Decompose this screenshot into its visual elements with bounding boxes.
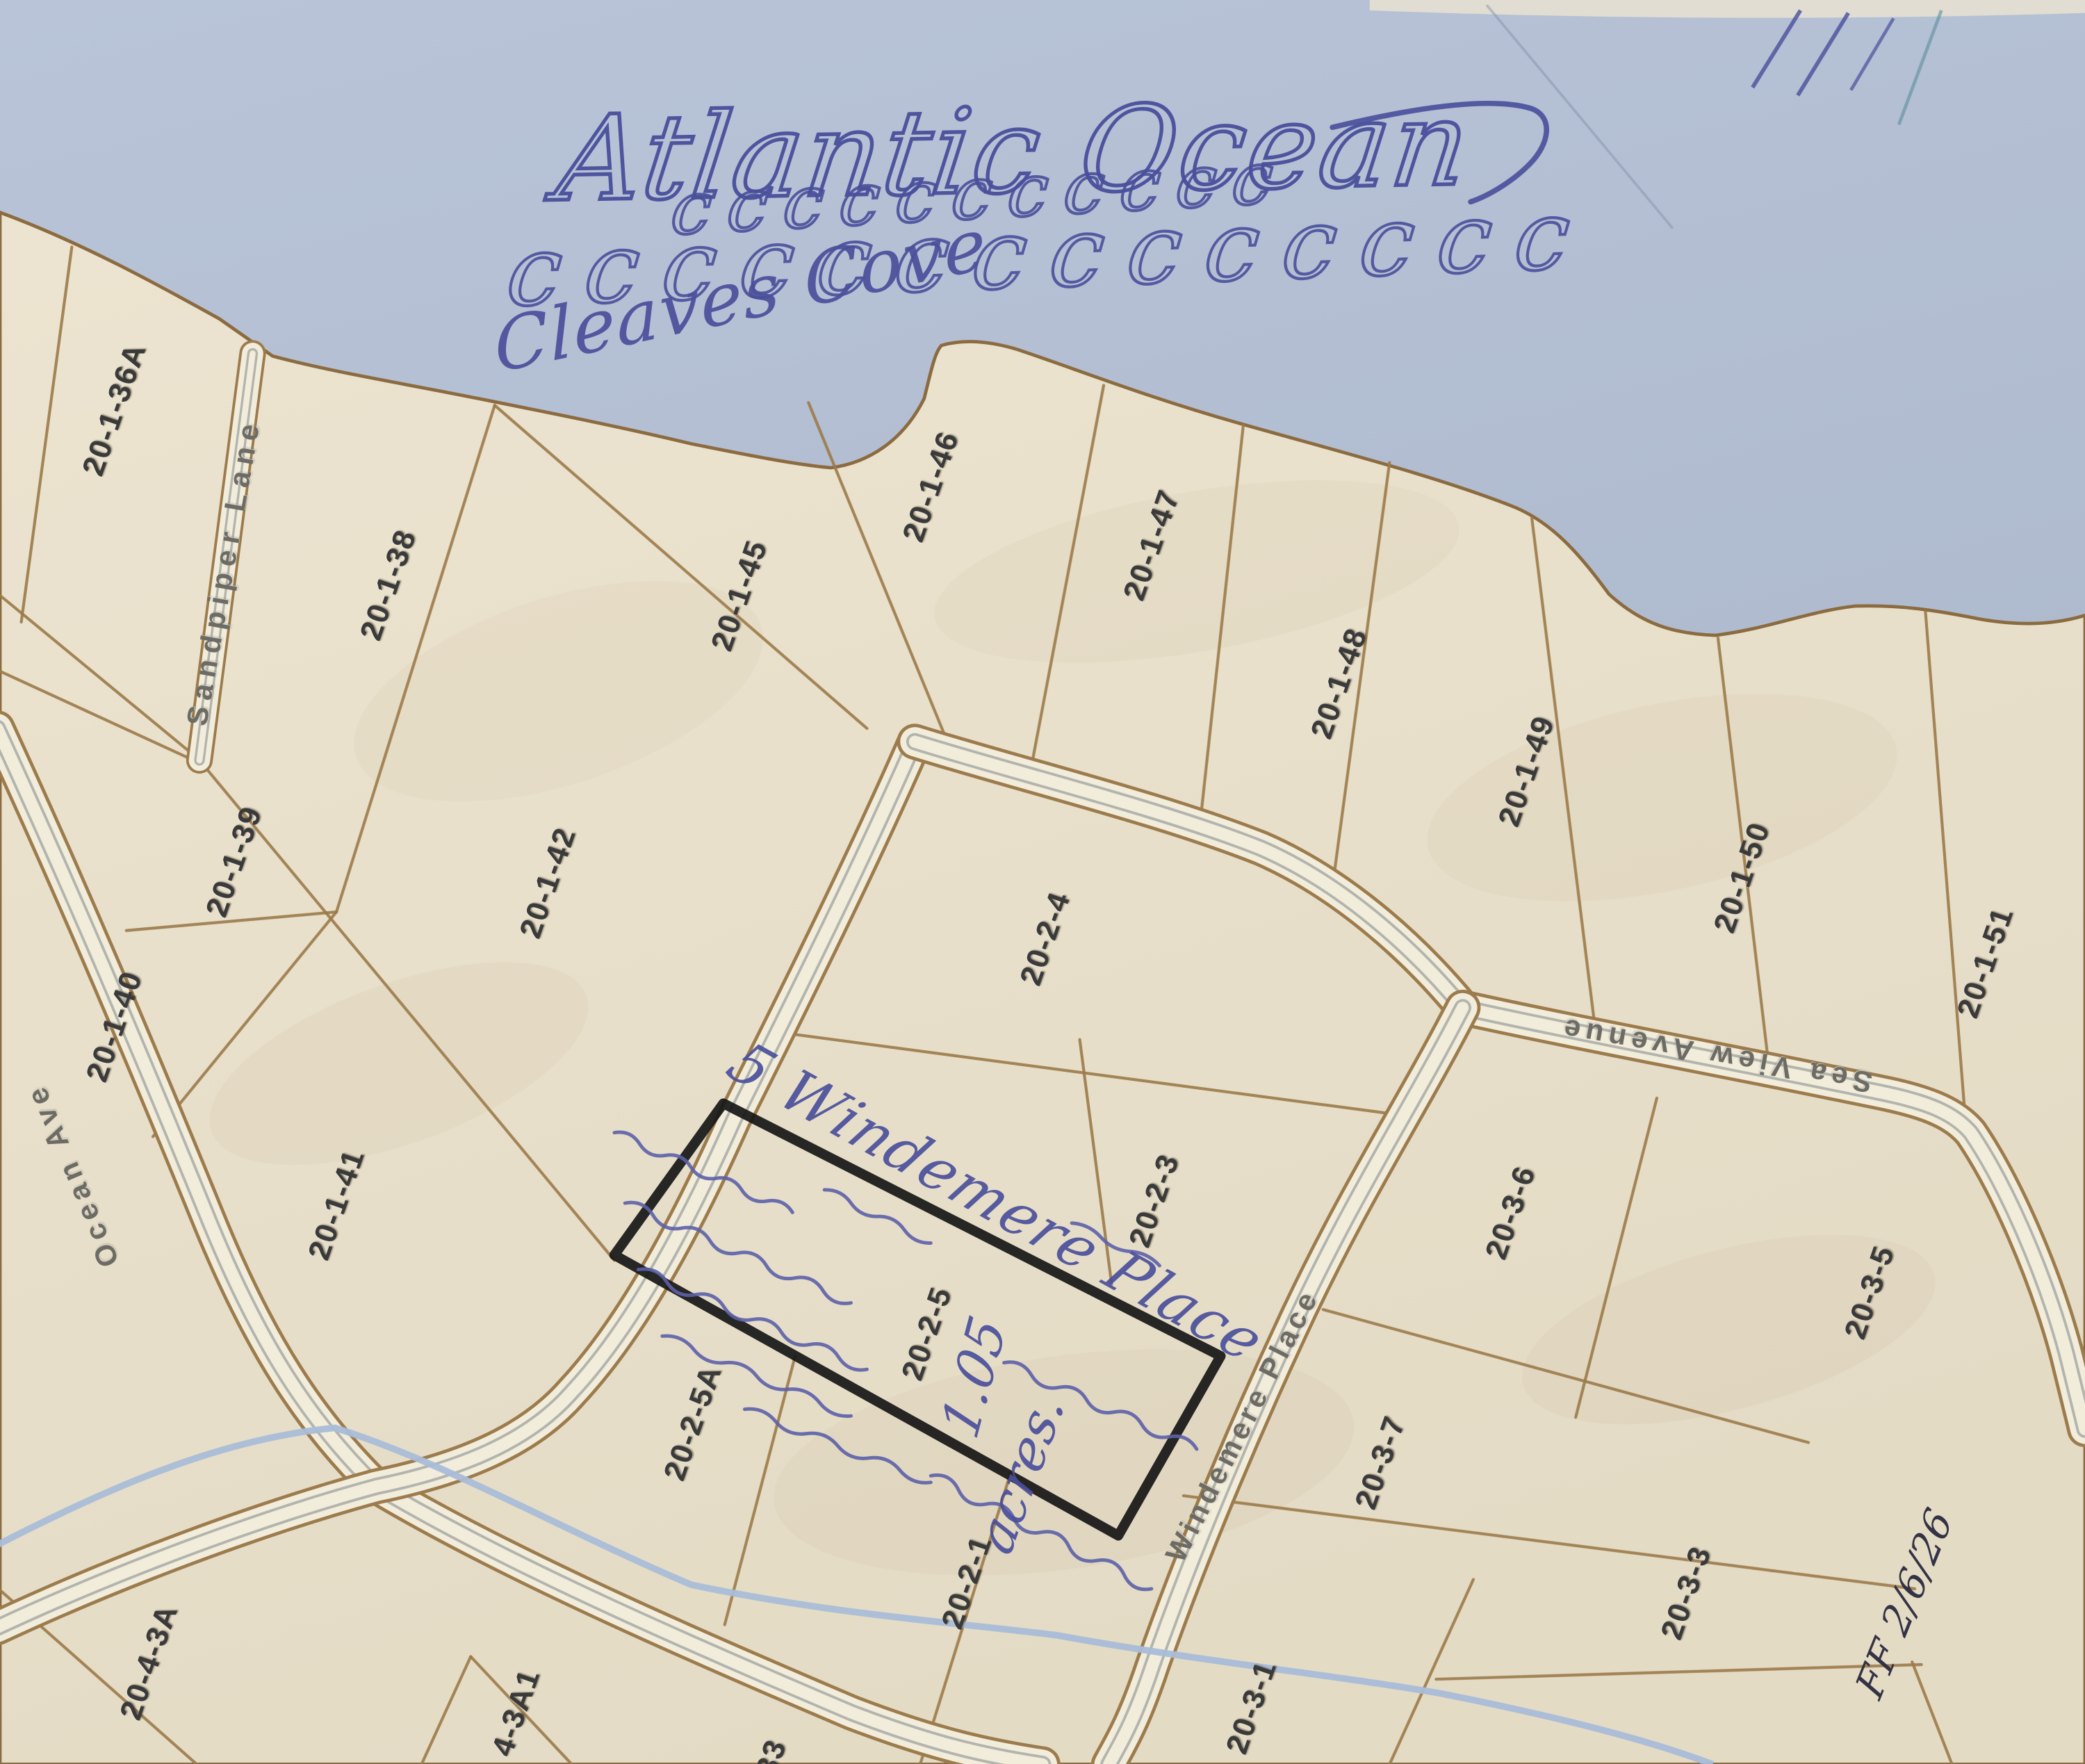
parcel-map: 20-1-36A20-1-3820-1-3920-1-4020-1-4120-1… (0, 0, 2085, 1764)
parcel-map-canvas: 20-1-36A20-1-3820-1-3920-1-4020-1-4120-1… (0, 0, 2085, 1764)
